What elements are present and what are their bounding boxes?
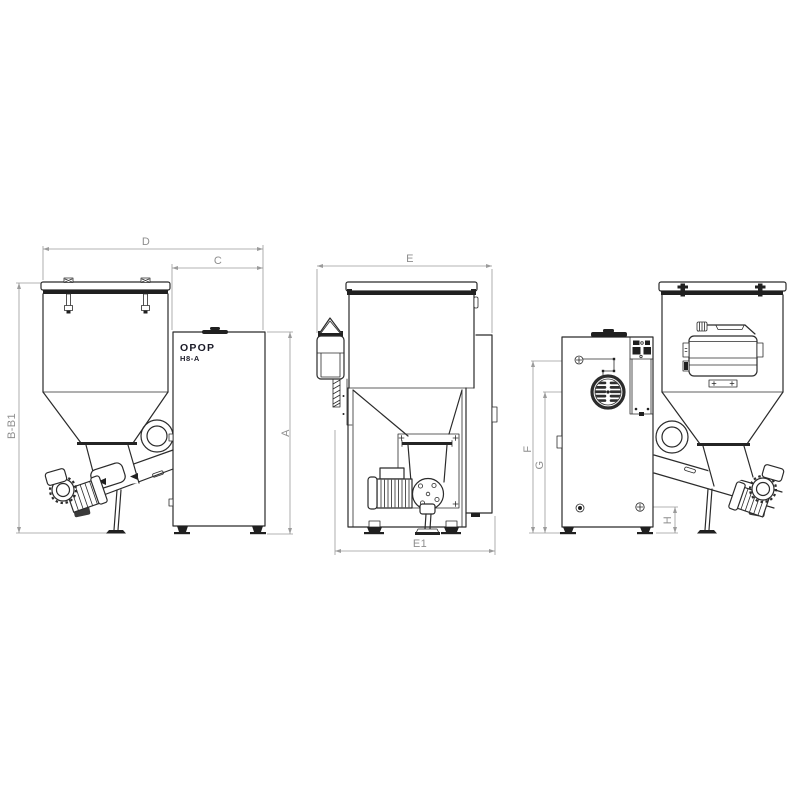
- dimension-label-C: C: [214, 255, 222, 267]
- view-side-right: F G H: [522, 282, 786, 534]
- boiler-body-rear: [557, 329, 653, 534]
- model-label: H8-A: [180, 354, 200, 363]
- boiler-body-side: OPOP H8-A: [169, 327, 266, 534]
- brand-logo: OPOP: [180, 342, 215, 354]
- support-leg: [697, 489, 717, 534]
- dimension-label-E1: E1: [413, 538, 427, 550]
- technical-drawing-page: D C B-B1 A: [0, 0, 800, 800]
- dimension-C: C: [172, 255, 263, 330]
- boiler-dimension-drawing: D C B-B1 A: [0, 0, 800, 800]
- auger-drive-front: [317, 318, 352, 425]
- exhaust-fan: [592, 376, 624, 408]
- dimension-label-F: F: [522, 445, 534, 452]
- dimension-label-G: G: [534, 461, 546, 470]
- sensor-screw: [575, 356, 583, 364]
- fuel-canister: [683, 322, 763, 387]
- pellet-hopper-front: [346, 282, 478, 388]
- port-screw: [636, 503, 644, 511]
- pellet-hopper-side: [41, 278, 170, 443]
- flue-outlet-circle: [141, 420, 173, 452]
- view-side-left: D C B-B1 A: [6, 236, 293, 534]
- hopper-funnel: [662, 392, 783, 444]
- dimension-label-B-B1: B-B1: [6, 413, 18, 439]
- dimension-label-D: D: [142, 236, 150, 248]
- dimension-A: A: [267, 332, 293, 534]
- view-front: E E1: [317, 253, 497, 555]
- dimension-label-A: A: [280, 429, 292, 437]
- dimension-label-E: E: [406, 253, 414, 265]
- flue-outlet-circle: [656, 421, 688, 453]
- support-leg: [106, 490, 126, 534]
- dimension-label-H: H: [662, 516, 674, 524]
- boiler-behind: [466, 335, 497, 517]
